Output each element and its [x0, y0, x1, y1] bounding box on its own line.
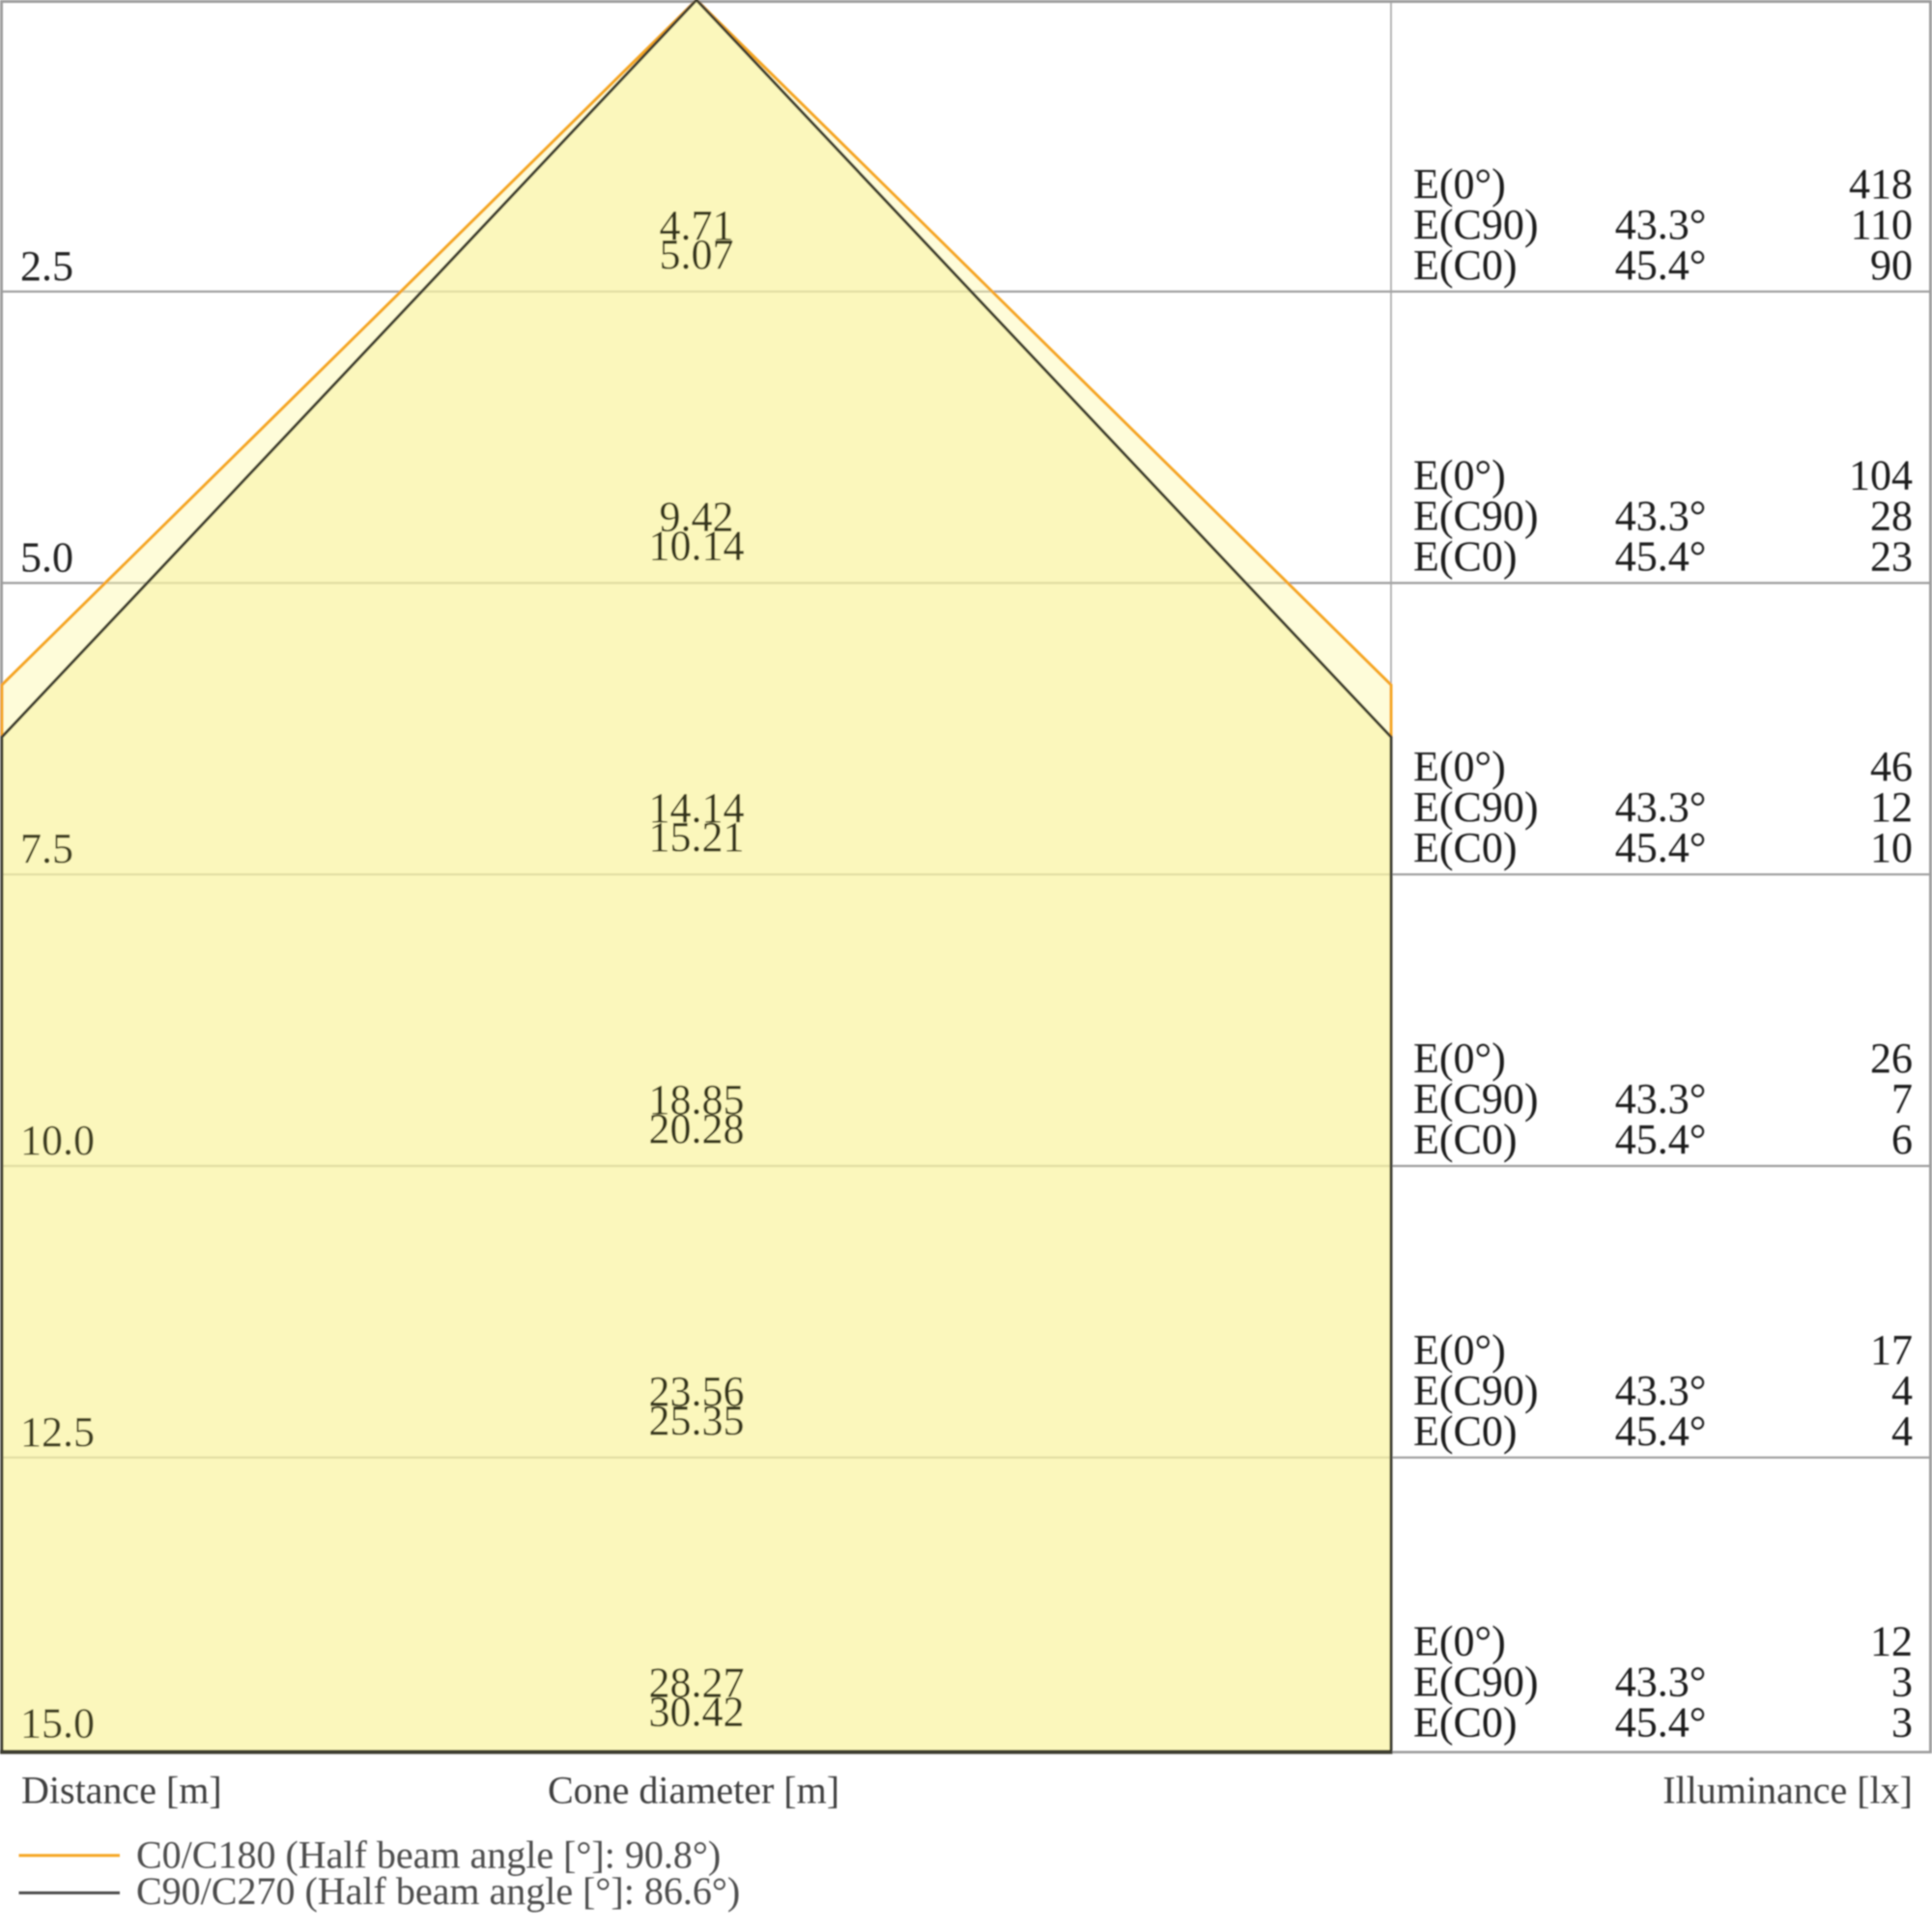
svg-text:E(C0): E(C0)	[1413, 1699, 1518, 1747]
svg-text:E(C0): E(C0)	[1413, 241, 1518, 289]
svg-text:15.21: 15.21	[649, 813, 745, 861]
svg-text:15.0: 15.0	[20, 1700, 95, 1747]
svg-text:Illuminance [lx]: Illuminance [lx]	[1662, 1769, 1913, 1812]
svg-text:6: 6	[1891, 1116, 1913, 1163]
svg-text:4: 4	[1891, 1407, 1913, 1455]
svg-text:2.5: 2.5	[20, 242, 73, 290]
svg-text:5.07: 5.07	[660, 231, 734, 278]
svg-text:45.4°: 45.4°	[1615, 824, 1707, 871]
svg-text:90: 90	[1870, 241, 1913, 289]
svg-text:C90/C270 (Half beam angle [°]:: C90/C270 (Half beam angle [°]: 86.6°)	[136, 1869, 740, 1913]
svg-text:10.0: 10.0	[20, 1117, 95, 1164]
svg-text:Distance [m]: Distance [m]	[21, 1769, 222, 1812]
svg-text:45.4°: 45.4°	[1615, 241, 1707, 289]
svg-text:E(C0): E(C0)	[1413, 1407, 1518, 1455]
svg-text:7.5: 7.5	[20, 825, 73, 872]
svg-text:45.4°: 45.4°	[1615, 1116, 1707, 1163]
svg-text:Cone diameter [m]: Cone diameter [m]	[548, 1769, 839, 1812]
svg-text:E(C0): E(C0)	[1413, 533, 1518, 581]
svg-text:45.4°: 45.4°	[1615, 1699, 1707, 1747]
svg-text:5.0: 5.0	[20, 534, 73, 582]
svg-text:3: 3	[1891, 1699, 1913, 1747]
svg-text:20.28: 20.28	[649, 1105, 745, 1152]
svg-text:25.35: 25.35	[649, 1397, 745, 1444]
svg-text:45.4°: 45.4°	[1615, 1407, 1707, 1455]
svg-text:45.4°: 45.4°	[1615, 533, 1707, 581]
svg-text:30.42: 30.42	[649, 1689, 745, 1736]
svg-text:23: 23	[1870, 533, 1913, 581]
svg-text:10.14: 10.14	[649, 523, 745, 570]
svg-text:12.5: 12.5	[20, 1408, 95, 1456]
svg-text:E(C0): E(C0)	[1413, 1116, 1518, 1163]
svg-text:10: 10	[1870, 824, 1913, 871]
svg-text:E(C0): E(C0)	[1413, 824, 1518, 871]
